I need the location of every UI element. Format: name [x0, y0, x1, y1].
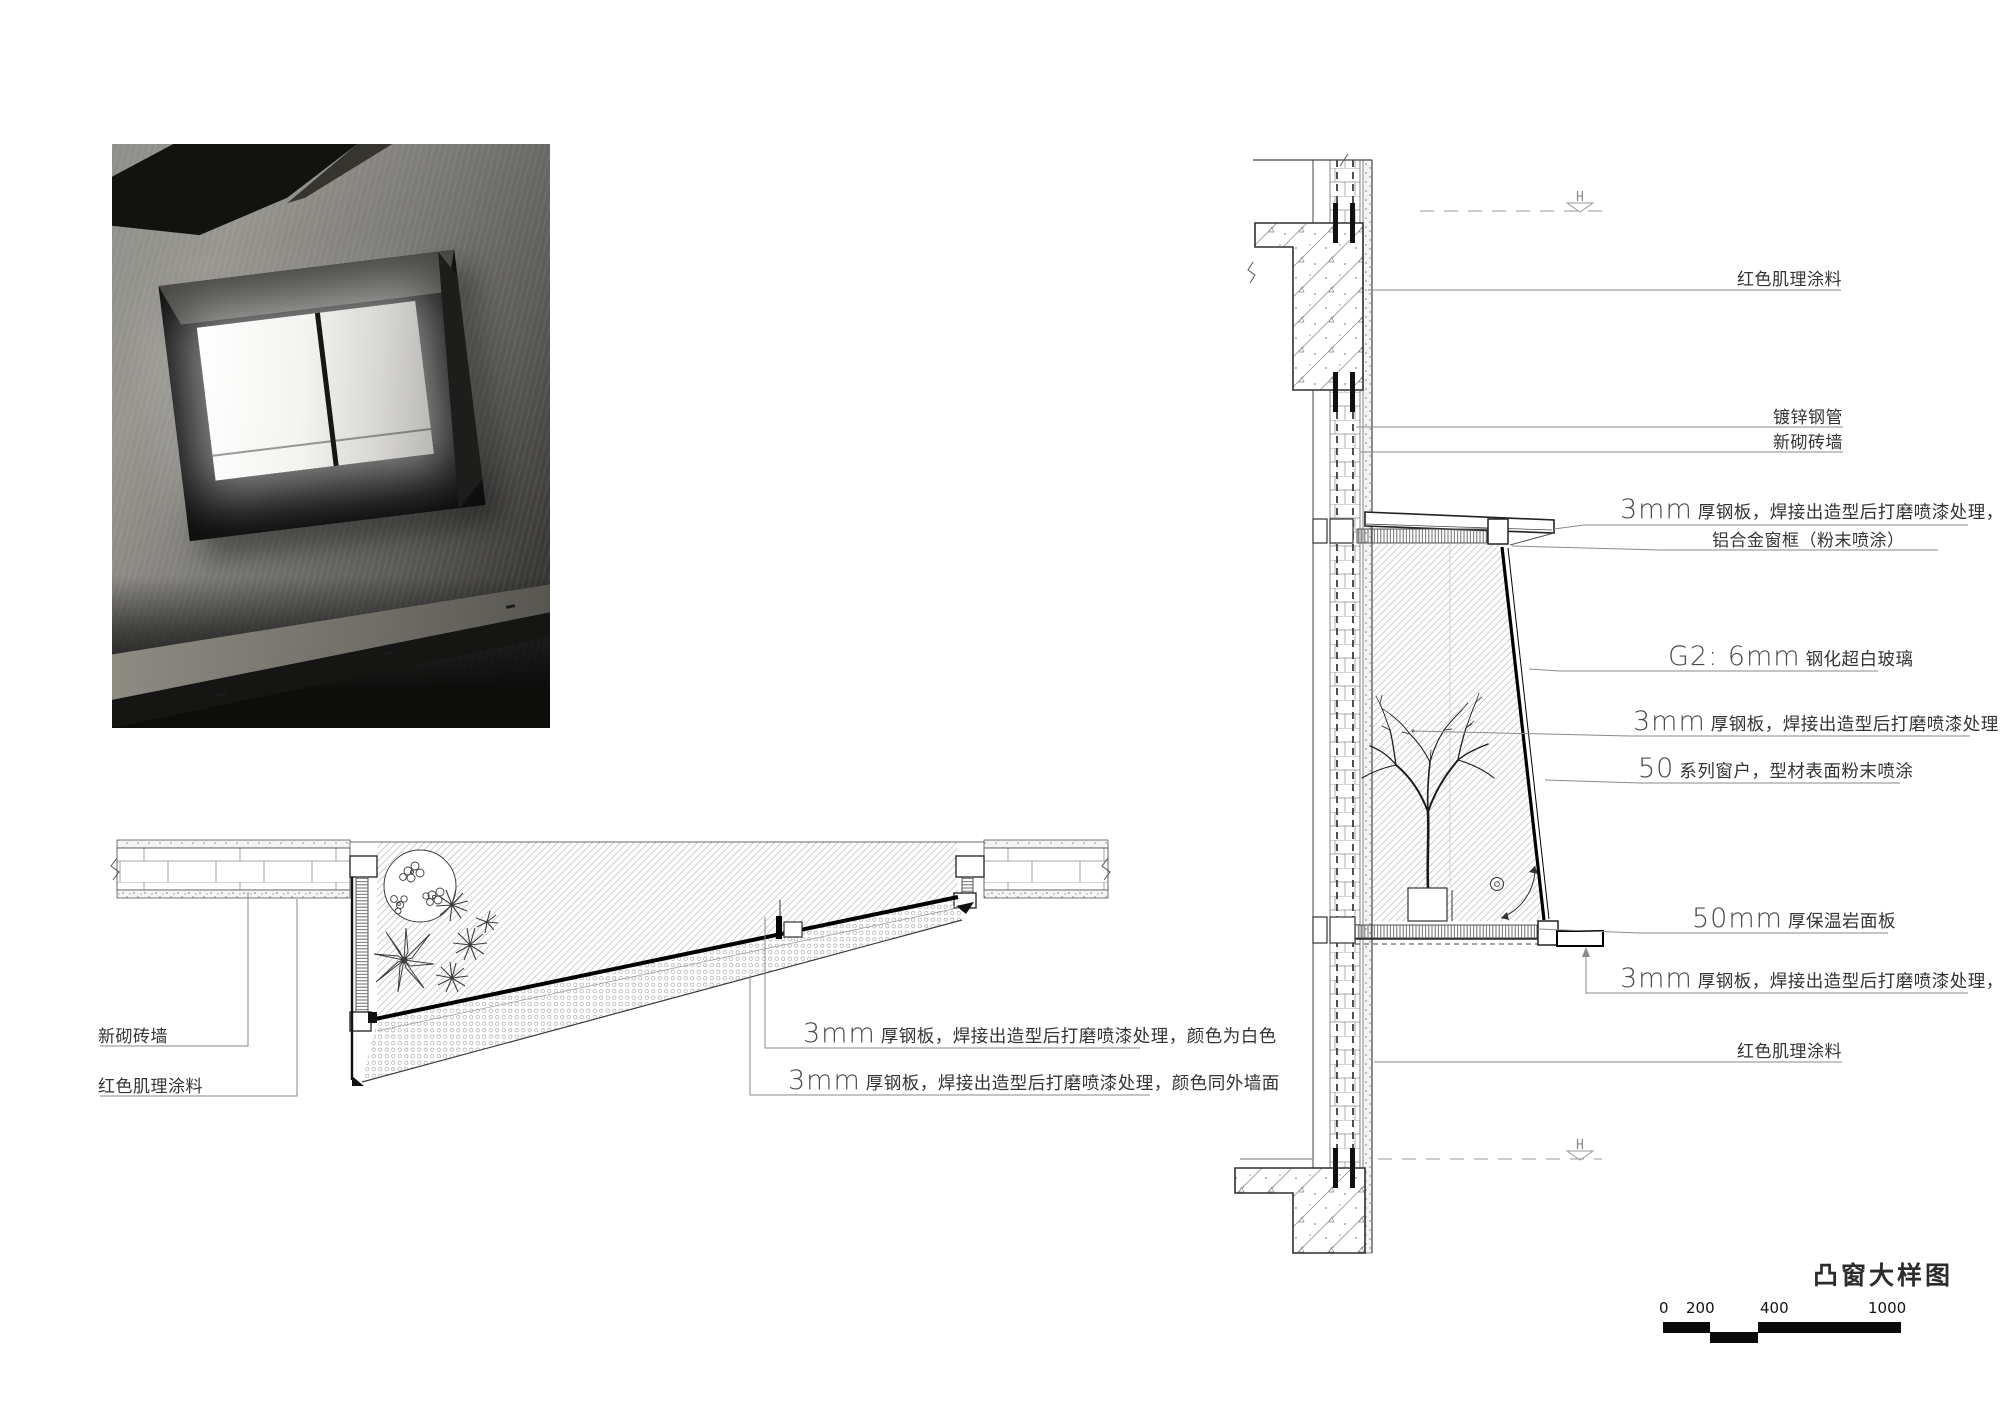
scale-bar-segment [1710, 1332, 1758, 1343]
label-galvanized-steel-pipe: 镀锌钢管 [1773, 403, 1843, 428]
level-marker-top [1420, 203, 1602, 212]
label-plan-red-texture-paint: 红色肌理涂料 [98, 1072, 203, 1097]
break-mark [1248, 262, 1255, 283]
drawing-title: 凸窗大样图 [1813, 1256, 1953, 1292]
plan-detail-drawing [100, 840, 1150, 1096]
scale-label-200: 200 [1686, 1299, 1715, 1317]
stucco-layer [1363, 160, 1372, 1253]
planter-box [1408, 888, 1447, 921]
plan-wall-left [111, 840, 350, 898]
plan-glass-hinge [368, 1012, 377, 1023]
level-label-bottom: H [1576, 1138, 1584, 1153]
label-plan-steel-plate-wall-color: 3mm厚钢板，焊接出造型后打磨喷漆处理，颜色同外墙面 [788, 1065, 1280, 1096]
label-plan-steel-plate-white: 3mm厚钢板，焊接出造型后打磨喷漆处理，颜色为白色 [803, 1018, 1277, 1049]
label-red-texture-paint-bottom: 红色肌理涂料 [1737, 1037, 1842, 1062]
label-plan-new-brick-wall: 新砌砖墙 [98, 1022, 168, 1047]
plan-wall-right [984, 840, 1110, 898]
level-label-top: H [1576, 190, 1584, 205]
insulation-strip [1355, 925, 1537, 938]
label-aluminum-window-frame: 铝合金窗框（粉末喷涂） [1712, 526, 1905, 551]
scale-label-1000: 1000 [1868, 1299, 1906, 1317]
section-detail-drawing [1235, 154, 1970, 1253]
level-marker-bottom [1378, 1151, 1602, 1160]
scale-bar-segment [1758, 1322, 1901, 1333]
window-frame [1538, 921, 1558, 945]
scale-bar-segment [1663, 1322, 1710, 1333]
scale-label-0: 0 [1659, 1299, 1669, 1317]
label-rockwool-panel: 50mm厚保温岩面板 [1692, 903, 1896, 934]
label-series50-window: 50系列窗户，型材表面粉末喷涂 [1638, 753, 1913, 784]
label-steel-plate-white: 3mm厚钢板，焊接出造型后打磨喷漆处理，颜色为白色 [1633, 706, 2000, 737]
insulation-strip [1357, 529, 1487, 543]
scale-label-400: 400 [1760, 1299, 1789, 1317]
drawing-sheet: 红色肌理涂料 镀锌钢管 新砌砖墙 3mm厚钢板，焊接出造型后打磨喷漆处理，颜色同… [0, 0, 2000, 1414]
label-steel-plate-wall-color-bottom: 3mm厚钢板，焊接出造型后打磨喷漆处理，颜色同外墙面 [1620, 963, 2000, 994]
label-steel-plate-wall-color-top: 3mm厚钢板，焊接出造型后打磨喷漆处理，颜色同外墙面 [1620, 494, 2000, 525]
steel-plate-extension [1557, 931, 1603, 946]
label-red-texture-paint-top: 红色肌理涂料 [1737, 265, 1842, 290]
concrete-beam-top [1248, 203, 1363, 412]
label-tempered-glass: G2: 6mm钢化超白玻璃 [1668, 641, 1914, 672]
window-frame [1488, 519, 1508, 544]
label-new-brick-wall: 新砌砖墙 [1773, 428, 1843, 453]
